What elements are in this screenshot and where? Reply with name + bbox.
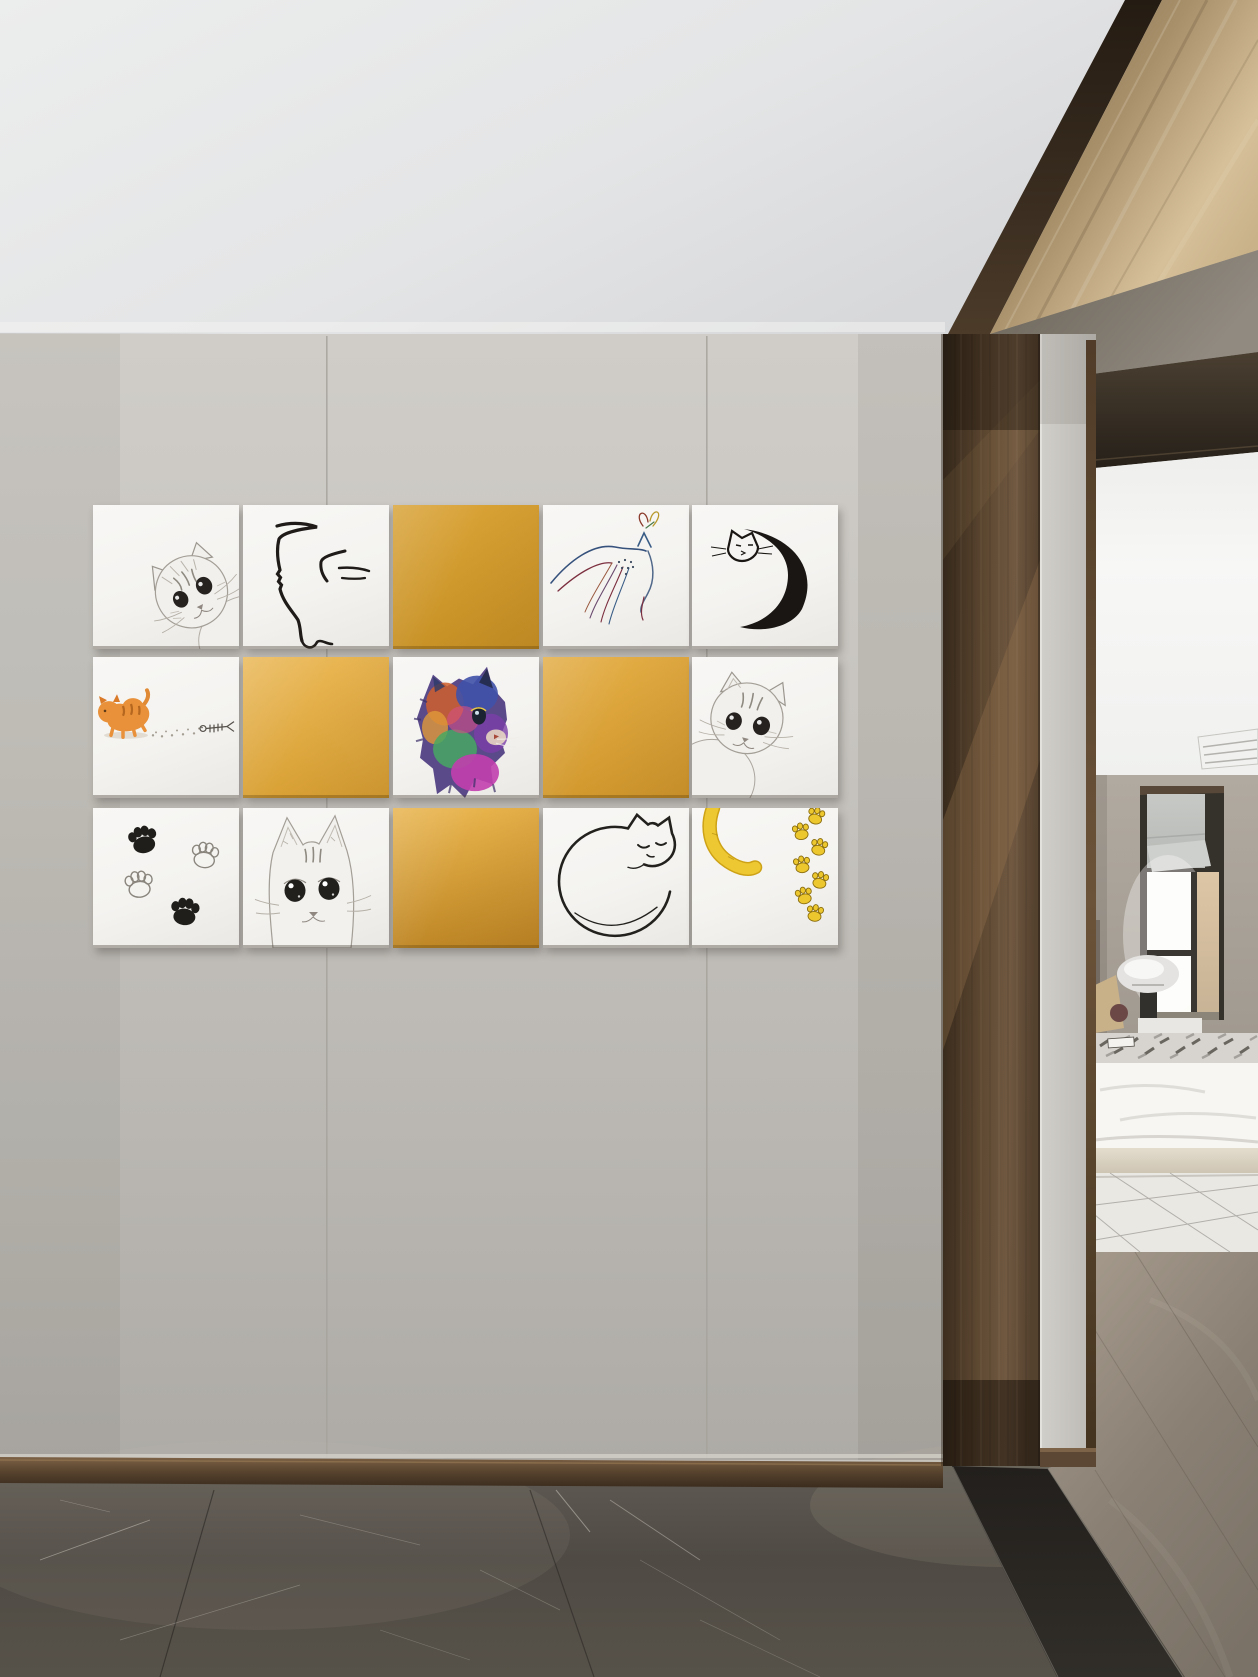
throw-blanket	[1095, 1033, 1258, 1063]
magazine	[1108, 1037, 1135, 1048]
wall-seam-left	[326, 336, 328, 1458]
bedroom-ceiling	[1095, 452, 1258, 775]
interior-photo	[0, 0, 1258, 1677]
rug	[1095, 1173, 1258, 1252]
wall-seam-right	[706, 336, 708, 1458]
bedroom-view	[1095, 452, 1258, 1252]
bed	[1095, 1033, 1258, 1173]
accent-pillow	[1110, 1004, 1128, 1022]
jamb-bronze-edge	[1086, 340, 1096, 1462]
interior-photo-scene	[0, 0, 1258, 1677]
door-jamb	[1040, 334, 1096, 1467]
bed-base	[1095, 1148, 1258, 1173]
bronze-pilaster	[941, 334, 1040, 1466]
ceiling	[0, 0, 1125, 336]
hallway-wall	[0, 334, 943, 1460]
